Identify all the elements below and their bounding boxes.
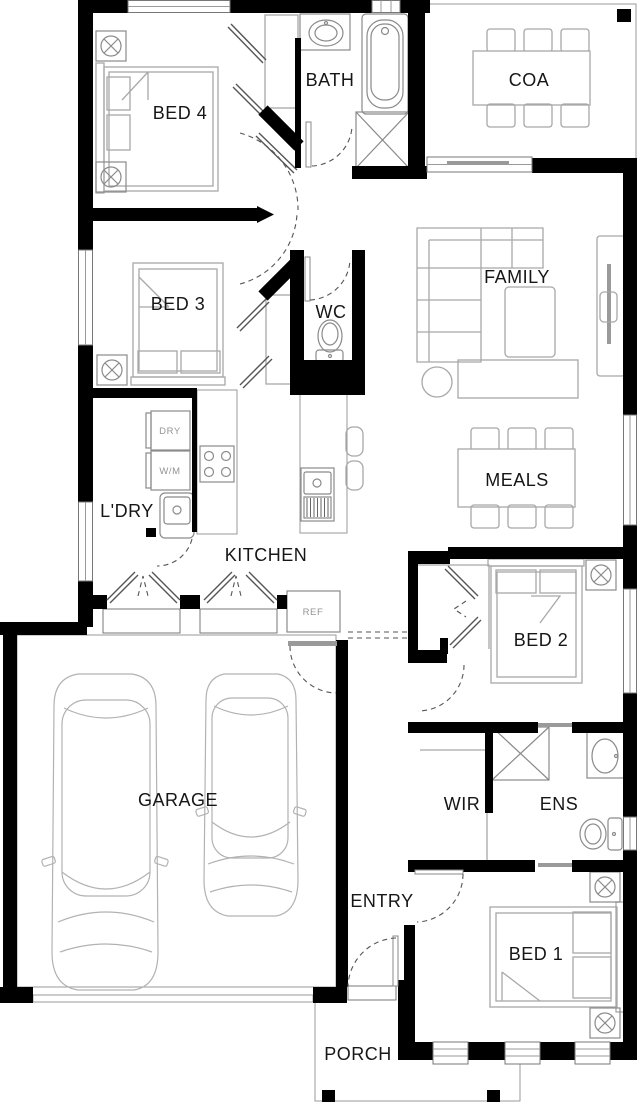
bed3-bed [131,263,225,385]
family-tv-unit [597,236,625,376]
bed1-window-2 [505,1042,540,1064]
bed4-ceiling-fan-icon-2 [96,162,126,192]
family-sofa [417,228,543,362]
laundry-window [79,502,93,581]
garage-internal-door [288,641,337,693]
meals-window [624,415,637,525]
bed1-window-1 [433,1042,468,1064]
kitchen-cooktop-icon [200,446,234,482]
bed2-window [624,589,637,693]
bed1-ceiling-fan-icon [590,872,620,902]
room-label-meals: MEALS [485,470,549,490]
bed4-ceiling-fan-icon [96,31,126,61]
appliance-label-dryer: DRY [159,426,181,437]
floor-plan-svg: BED 4 BATH COA BED 3 WC FAMILY L'DRY KIT… [0,0,640,1110]
family-side-table [422,367,452,397]
front-door-threshold [348,986,396,1000]
ens-vanity-sink-icon [587,732,625,778]
kitchen-island [300,394,363,533]
appliance-label-washer: W/M [159,466,180,477]
laundry-door [157,539,192,566]
room-label-kitchen: KITCHEN [225,545,308,565]
floor-plan: BED 4 BATH COA BED 3 WC FAMILY L'DRY KIT… [0,0,640,1110]
appliance-label-fridge: REF [303,607,324,618]
room-label-bed3: BED 3 [151,294,206,314]
bed2-door [418,665,464,711]
ens-toilet-icon [580,818,622,850]
bed4-window [128,1,230,13]
wc-door [305,257,350,301]
bed3-window [79,250,93,345]
wc-toilet-icon [316,320,343,362]
hall-opening-dashes [348,632,408,638]
room-label-bed2: BED 2 [514,630,569,650]
room-label-coa: COA [509,70,550,90]
room-label-entry: ENTRY [350,891,413,911]
room-label-ens: ENS [540,794,579,814]
family-rug [458,360,578,398]
coa-sliding-door [427,157,532,172]
room-label-ldry: L'DRY [100,501,154,521]
garage-car-1 [41,674,168,990]
room-label-wc: WC [316,302,347,322]
bath-shower-icon [356,112,409,168]
bed2-ceiling-fan-icon [586,560,616,590]
bed1-window-3 [575,1042,610,1064]
bifold-steps [103,609,277,633]
room-label-family: FAMILY [484,267,550,287]
bed2-bed [488,559,584,683]
bed3-ceiling-fan-icon [97,355,127,385]
bathtub-icon [362,14,408,114]
family-ottoman [505,287,555,357]
ens-window [624,817,637,850]
room-label-bath: BATH [306,70,355,90]
bed4-robe [228,15,298,173]
room-label-garage: GARAGE [138,790,218,810]
bed2-robe [418,565,489,649]
laundry-trough-icon [160,493,194,538]
bath-door [306,122,352,167]
bath-shelf [372,1,400,13]
appliance-labels: DRY W/M REF [159,426,323,618]
ens-shower-icon [492,727,549,780]
kitchen-bench [197,390,237,534]
room-label-wir: WIR [444,794,481,814]
room-label-porch: PORCH [324,1044,392,1064]
room-label-bed1: BED 1 [509,944,564,964]
front-door [348,936,398,986]
room-label-bed4: BED 4 [153,103,208,123]
bed1-door [415,870,463,922]
bath-vanity-sink-icon [300,14,350,50]
